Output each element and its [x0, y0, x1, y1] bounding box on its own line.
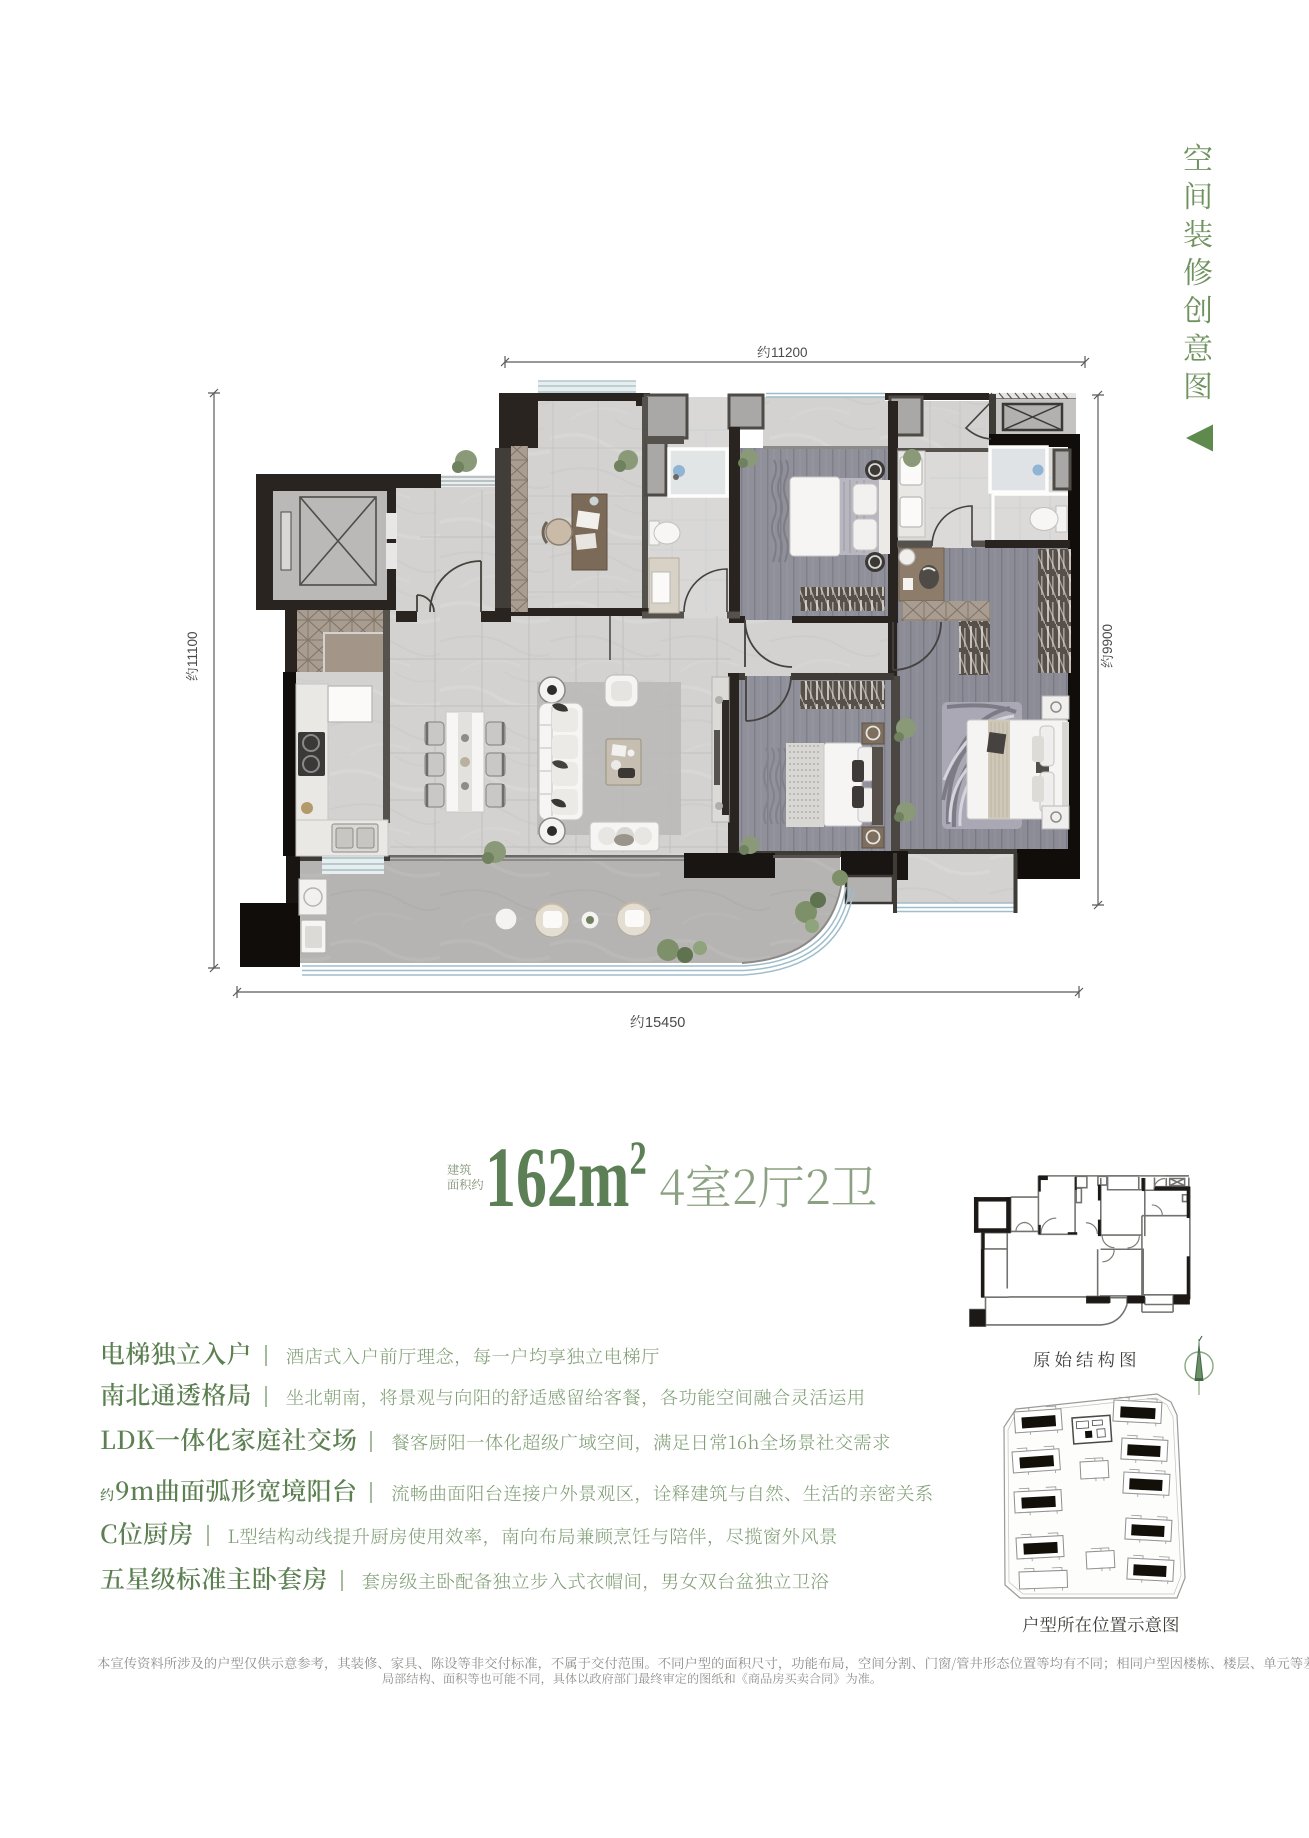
svg-text:162m2: 162m2	[485, 1130, 647, 1225]
svg-text:11100: 11100	[185, 631, 200, 667]
svg-text:9900: 9900	[1100, 624, 1115, 654]
svg-text:15450: 15450	[645, 1015, 685, 1031]
svg-text:11200: 11200	[771, 345, 808, 360]
